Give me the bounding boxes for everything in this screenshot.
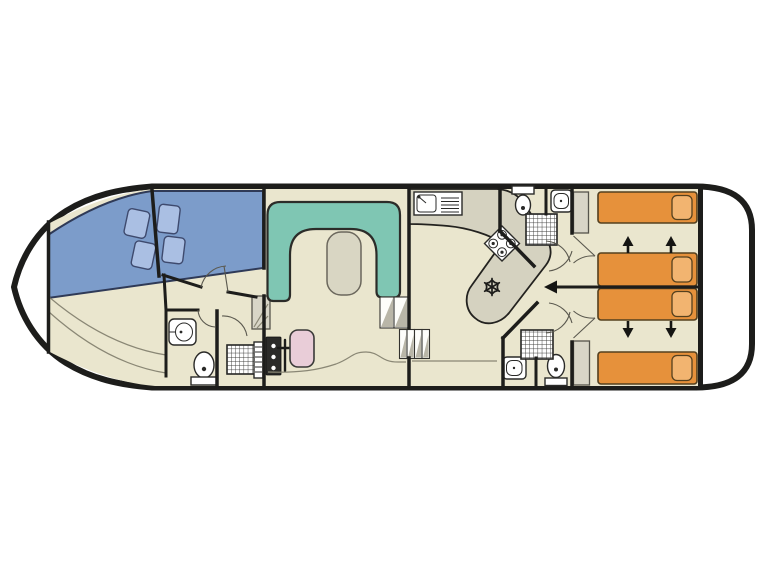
boat-floor-plan xyxy=(0,0,768,576)
washbasin-icon xyxy=(169,319,196,345)
shower-icon xyxy=(526,214,557,245)
helm-console-icon xyxy=(266,337,281,375)
grille-icon xyxy=(254,342,263,378)
wardrobe xyxy=(574,192,589,233)
wardrobe xyxy=(252,296,270,329)
shower-icon xyxy=(521,330,553,359)
galley-sink-icon xyxy=(414,192,462,215)
pillow xyxy=(672,292,692,317)
pillow xyxy=(672,356,692,381)
pillow xyxy=(672,257,692,282)
shower-icon xyxy=(227,345,257,374)
pillow xyxy=(161,236,185,264)
pillow xyxy=(672,196,692,220)
pillow xyxy=(156,204,180,234)
wardrobe xyxy=(574,341,590,385)
pillow xyxy=(131,240,157,270)
helm-seat xyxy=(290,330,314,367)
washbasin-icon xyxy=(551,190,572,212)
washbasin-icon xyxy=(503,357,526,379)
saloon-table xyxy=(327,232,361,295)
stairs-icon xyxy=(400,330,430,359)
pillow xyxy=(123,208,150,239)
stairs-icon xyxy=(380,297,408,328)
